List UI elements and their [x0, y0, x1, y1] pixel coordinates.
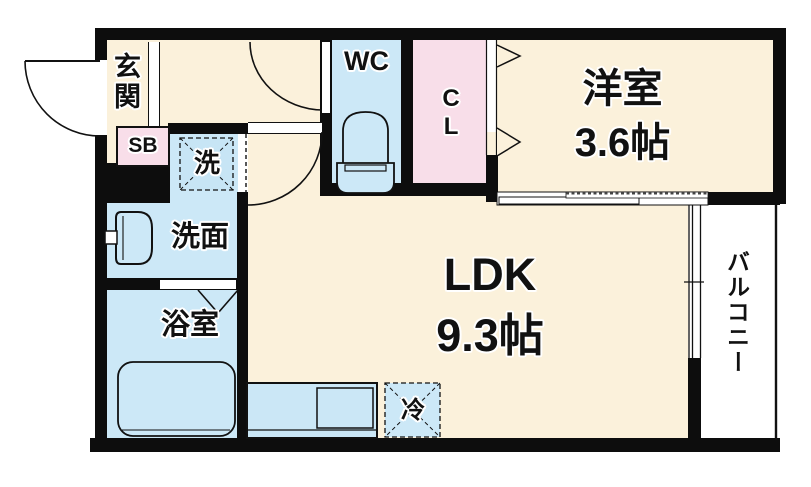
ldk-size: 9.3帖 — [436, 310, 544, 361]
western-room-name: 洋室 — [583, 67, 663, 111]
sink-icon — [105, 212, 152, 264]
toilet-icon — [337, 112, 394, 193]
western-room-label: 洋室 3.6帖 — [500, 62, 745, 170]
entrance-door-icon — [25, 61, 100, 136]
wc-door-arc-icon — [250, 42, 322, 110]
sliding-door-icon — [497, 192, 708, 205]
ldk-name: LDK — [444, 249, 536, 300]
wc-label: WC — [332, 46, 401, 77]
ldk-label: LDK 9.3帖 — [360, 244, 620, 366]
shoebox-label: SB — [118, 134, 168, 158]
kitchen-counter-icon — [247, 383, 377, 438]
ldk-door-icon — [246, 132, 322, 205]
genkan-label: 玄関 — [109, 52, 140, 112]
bathtub-icon — [118, 362, 235, 436]
floor-plan: 玄関 SB 洗 WC CL 洋室 3.6帖 LDK 9.3帖 洗面 浴室 冷 バ… — [0, 0, 811, 487]
balcony-window-icon — [684, 205, 704, 358]
balcony-label: バルコニー — [723, 250, 749, 375]
washer-label: 洗 — [183, 149, 231, 179]
closet-label: CL — [437, 85, 465, 141]
western-room-size: 3.6帖 — [575, 121, 671, 165]
washroom-label: 洗面 — [155, 221, 245, 254]
fridge-label: 冷 — [394, 397, 432, 425]
bathroom-label: 浴室 — [145, 309, 235, 342]
